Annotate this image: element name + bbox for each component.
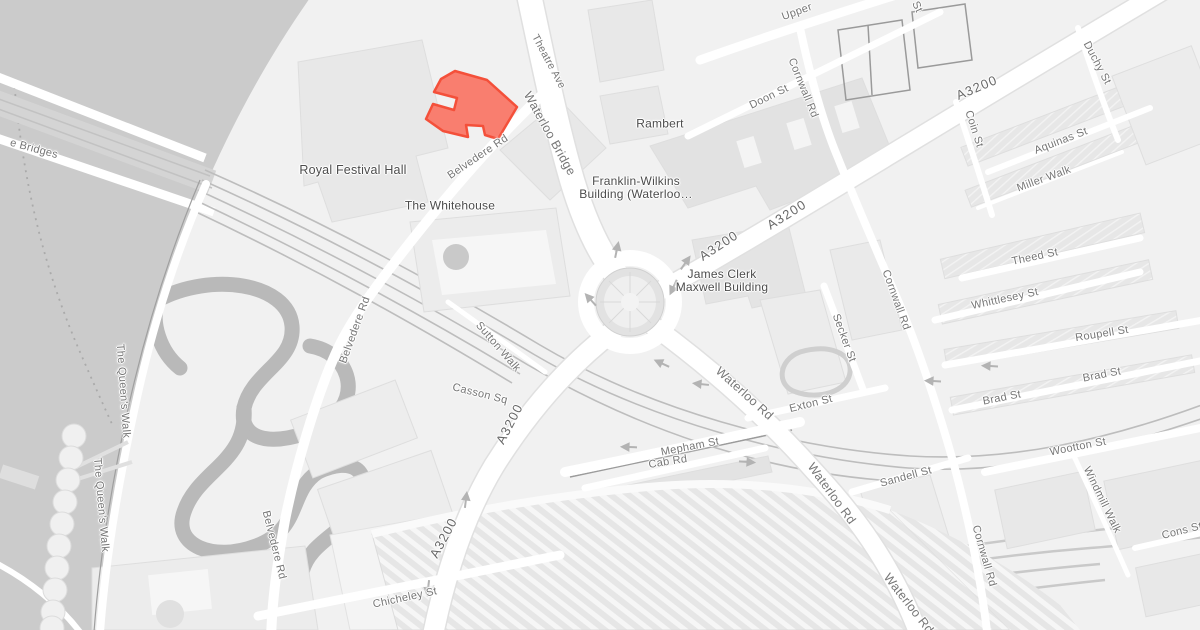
bfi-imax-roundabout — [596, 268, 664, 336]
rambert-building — [600, 86, 668, 144]
map-canvas — [0, 0, 1200, 630]
fountain-circle — [443, 244, 469, 270]
map-viewport[interactable]: Waterloo BridgeBelvedere RdBelvedere RdB… — [0, 0, 1200, 630]
